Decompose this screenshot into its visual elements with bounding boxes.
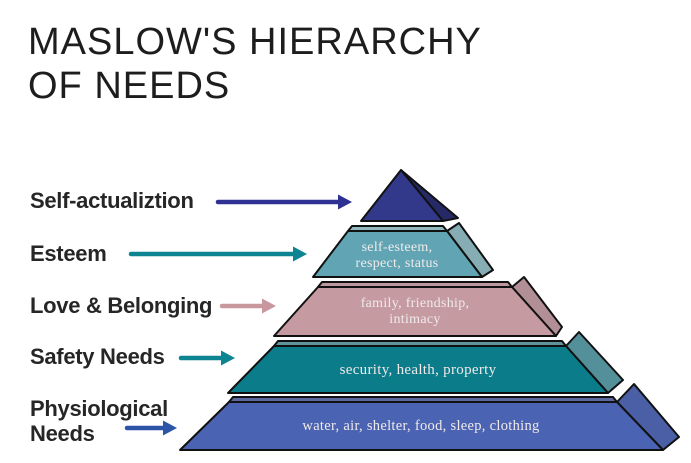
- pyramid-level-esteem: self-esteem, respect, status: [313, 223, 493, 277]
- love-belonging-arrow: [222, 299, 276, 314]
- maslow-diagram: MASLOW'S HIERARCHY OF NEEDS Self-actuali…: [0, 0, 691, 463]
- self-actualization-arrowhead: [338, 195, 352, 210]
- pyramid-level-safety: security, health, property: [228, 332, 623, 393]
- safety-needs-arrowhead: [221, 351, 235, 366]
- love-belonging-text-line-1: family, friendship,: [361, 296, 470, 311]
- love-belonging-arrowhead: [262, 299, 276, 314]
- love-belonging-text-line-2: intimacy: [389, 312, 440, 327]
- esteem-arrowhead: [293, 247, 307, 262]
- esteem-arrow: [131, 247, 307, 262]
- esteem-text-line-1: self-esteem,: [362, 240, 433, 255]
- pyramid-level-self-actualization: [361, 170, 458, 221]
- pyramid-and-arrows-graphic: water, air, shelter, food, sleep, clothi…: [0, 0, 691, 463]
- physiological-needs-arrowhead: [163, 421, 177, 436]
- safety-needs-arrow: [181, 351, 235, 366]
- self-actualization-arrow: [218, 195, 352, 210]
- physiological-text: water, air, shelter, food, sleep, clothi…: [302, 418, 539, 434]
- pyramid-level-love-belonging: family, friendship, intimacy: [274, 277, 562, 336]
- safety-text: security, health, property: [340, 362, 497, 378]
- esteem-text-line-2: respect, status: [355, 256, 438, 271]
- physiological-needs-arrow: [127, 421, 177, 436]
